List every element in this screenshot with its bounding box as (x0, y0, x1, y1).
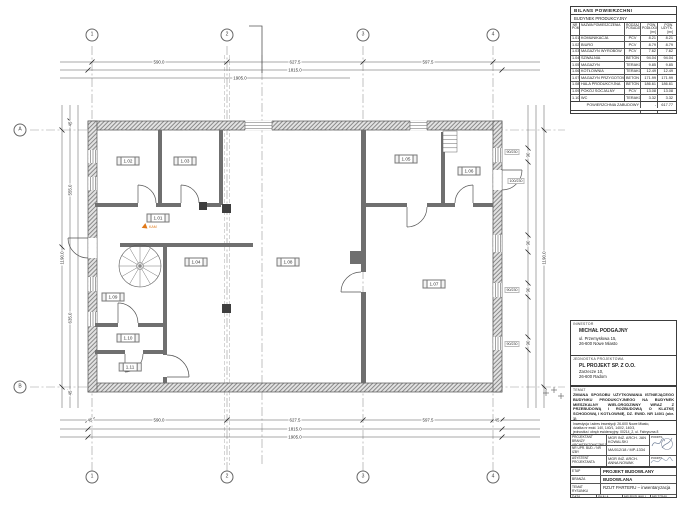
dim-bottom-1: 590.0 (153, 418, 166, 423)
dim-top-overall: 1905.0 (232, 76, 247, 81)
design-office-address-2: 26-600 Radom (571, 374, 676, 379)
dim-left-edge-1: 45 (68, 121, 73, 128)
area-table-rows: 1.01 KOMUNIKACJA PCV 8.21 8.21 1.02 BIUR… (571, 36, 676, 108)
axis-bubble-col-4-top: 4 (487, 29, 500, 42)
table-row: 1.08 HALA PRODUKCYJNA BETON 186.61 186.6… (571, 82, 676, 89)
dim-right-total: 1190.0 (542, 250, 547, 265)
axis-bubble-col-3-top: 3 (357, 29, 370, 42)
stage-value: PROJEKT BUDOWLANY (601, 468, 676, 475)
dim-top-1: 590.0 (153, 60, 166, 65)
window-label-1: 90/230 (505, 149, 520, 155)
dim-top-total: 1815.0 (287, 68, 302, 73)
drawing-number-label: NR RYSUNKU (623, 495, 651, 498)
dim-right-3: 90 (526, 287, 531, 294)
room-label-1-04: 1.04 (185, 258, 208, 267)
room-label-1-07: 1.07 (423, 280, 446, 289)
table-row: 1.01 KOMUNIKACJA PCV 8.21 8.21 (571, 36, 676, 43)
investor-name: MICHAŁ PODGAJNY (571, 327, 676, 334)
dim-left-2: 635.0 (68, 312, 73, 325)
investor-box: INWESTOR MICHAŁ PODGAJNY ul. Przemysłowa… (570, 320, 677, 356)
design-office-name: PL PROJEKT SP. Z O.O. (571, 362, 676, 369)
room-label-1-05: 1.05 (395, 155, 418, 164)
window-label-2: 90/230 (505, 287, 520, 293)
window-label-3: 90/230 (505, 341, 520, 347)
table-row: 1.02 BIURO PCV 8.79 8.79 (571, 42, 676, 49)
designer-name: MGR INŻ. ARCH. JAN KOWALSKI (607, 435, 650, 446)
dim-bottom-2: 627.5 (289, 418, 302, 423)
investor-address-1: ul. Przemysłowa 15, (571, 334, 676, 341)
door-label-1: 100/230 (508, 178, 525, 184)
dim-right-4: 90 (526, 340, 531, 347)
designer-role-label: PROJEKTANT BRANŻY ARCHITEKTONICZNEJ (571, 435, 607, 446)
axis-bubble-col-4-bottom: 4 (487, 471, 500, 484)
assistant-role-label: ASYSTENT PROJEKTANTA (571, 456, 607, 466)
window-openings (88, 121, 502, 350)
table-row: 1.03 MAGAZYN WYROBÓW PCV 7.62 7.62 (571, 49, 676, 56)
license-value: MA/012/18 / MP-1334 (607, 446, 650, 457)
assistant-signature-icon (650, 456, 674, 466)
license-label: NR UPR. BUD. / NR IZBY (571, 446, 607, 457)
assistant-name: MGR INŻ. ARCH. ANNA NOWAK (607, 456, 650, 466)
dimension-lines (60, 62, 544, 437)
location-box: Inwestycja i adres inwestycji: 26-600 No… (570, 420, 677, 435)
area-table-subtitle: BUDYNEK PRODUKCYJNY (571, 15, 676, 23)
table-row: 1.09 POKÓJ SOCJALNY PCV 13.08 13.08 (571, 89, 676, 96)
area-table-title: BILANS POWIERZCHNI (571, 7, 676, 15)
drawing-info-block: ETAP PROJEKT BUDOWLANY BRANŻA BUDOWLANA … (570, 467, 677, 498)
axis-bubble-col-2-top: 2 (221, 29, 234, 42)
date-label: DATA (571, 495, 597, 498)
built-area-row: POWIERZCHNIA ZABUDOWY - 617.77 (570, 101, 677, 111)
room-label-1-06: 1.06 (458, 167, 481, 176)
room-label-1-11: 1.11 (119, 363, 142, 372)
photo-marker-icon: KAM (143, 224, 157, 230)
dim-bottom-edge-1: 45 (87, 418, 94, 423)
drawing-title-value: RZUT PARTERU – inwentaryzacja (601, 484, 676, 494)
subject-text: ZMIANA SPOSOBU UŻYTKOWANIA ISTNIEJĄCEGO … (571, 392, 676, 421)
volume-number-label: NR TOMU (651, 495, 676, 498)
designer-signature-icon (650, 435, 674, 451)
floor-plan-linework (0, 0, 568, 510)
axis-bubble-col-3-bottom: 3 (357, 471, 370, 484)
room-label-1-02: 1.02 (117, 157, 140, 166)
dim-bottom-total: 1905.0 (287, 435, 302, 440)
dim-top-3: 597.5 (422, 60, 435, 65)
designer-signature-cell: PODPIS (650, 435, 676, 456)
spiral-staircase (119, 245, 161, 287)
stage-label: ETAP (571, 468, 601, 475)
signature-block: PROJEKTANT BRANŻY ARCHITEKTONICZNEJ MGR … (570, 434, 677, 467)
area-table-header: NR POM. NAZWA POMIESZCZENIA RODZAJ POSAD… (571, 23, 676, 36)
axis-bubble-col-1-bottom: 1 (86, 471, 99, 484)
area-balance-table: BILANS POWIERZCHNI BUDYNEK PRODUKCYJNY N… (570, 6, 677, 114)
investor-address-2: 26-600 Nowe Miasto (571, 341, 676, 346)
door-swings (68, 170, 522, 377)
table-row: 1.05 MAGAZYN TERAKOTA 9.85 9.85 (571, 62, 676, 69)
room-label-1-03: 1.03 (174, 157, 197, 166)
axis-bubble-col-2-bottom: 2 (221, 471, 234, 484)
design-office-box: JEDNOSTKA PROJEKTOWA PL PROJEKT SP. Z O.… (570, 355, 677, 386)
photo-marker-label: KAM (149, 225, 157, 229)
room-label-1-01: 1.01 (147, 214, 170, 223)
drawing-title-label: TEMAT RYSUNKU (571, 484, 601, 494)
room-label-1-10: 1.10 (117, 334, 140, 343)
drawing-sheet: 1 2 3 4 1 2 3 4 A B 1.01 1.02 1.03 1.04 … (0, 0, 680, 510)
axis-bubble-col-1-top: 1 (86, 29, 99, 42)
dim-top-2: 627.5 (289, 60, 302, 65)
dimension-ticks (60, 60, 547, 440)
table-row: 1.07 MAGAZYN PRZYGOTOWALNI BETON 171.99 … (571, 75, 676, 82)
discipline-label: BRANŻA (571, 476, 601, 483)
dim-left-edge-2: 45 (68, 390, 73, 397)
table-row: 1.06 KOTŁOWNIA TERAKOTA 12.49 12.49 (571, 69, 676, 76)
assistant-signature-cell: PODPIS (650, 456, 676, 466)
room-label-1-09: 1.09 (102, 293, 125, 302)
discipline-value: BUDOWLANA (601, 476, 676, 483)
scale-label: SKALA (597, 495, 623, 498)
axis-bubble-row-b: B (14, 381, 27, 394)
table-row: 1.04 SZWALNIA BETON 94.04 94.04 (571, 56, 676, 63)
room-label-1-08: 1.08 (277, 258, 300, 267)
corner-stair (443, 131, 457, 152)
dim-left-total: 1190.0 (60, 250, 65, 265)
subject-box: TEMAT ZMIANA SPOSOBU UŻYTKOWANIA ISTNIEJ… (570, 386, 677, 421)
dim-left-1: 555.0 (68, 184, 73, 197)
dim-bottom-edge-2: 45 (494, 418, 501, 423)
section-mark (249, 26, 262, 73)
axis-bubble-row-a: A (14, 124, 27, 137)
dim-bottom-3: 597.5 (422, 418, 435, 423)
dim-right-2: 90 (526, 240, 531, 247)
interior-walls (95, 130, 493, 383)
dim-right-1: 90 (526, 152, 531, 159)
dim-bottom-subtotal: 1815.0 (287, 427, 302, 432)
